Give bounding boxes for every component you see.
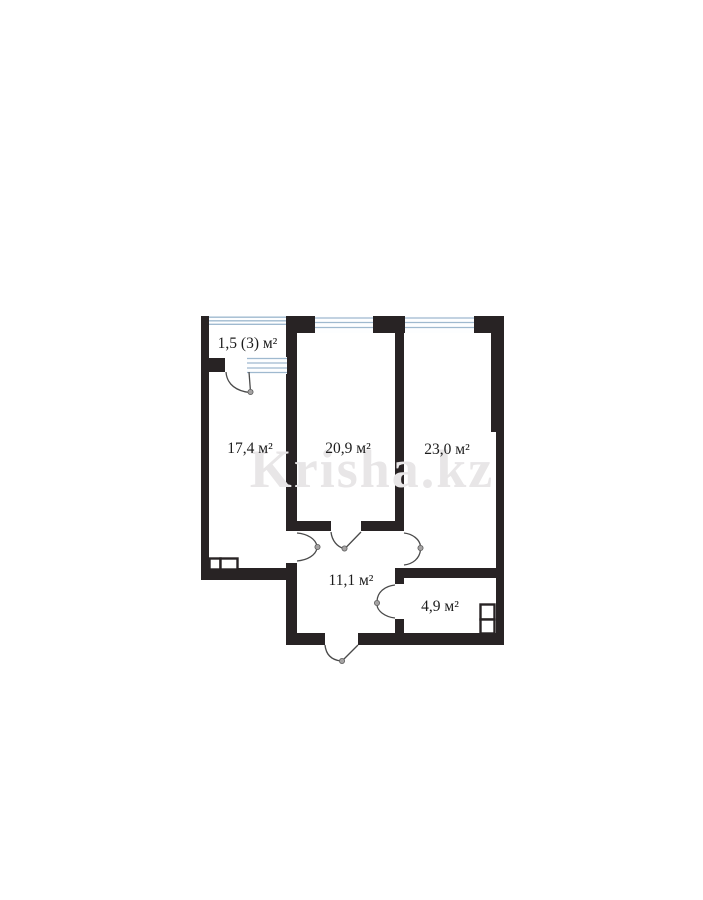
room-label-23: 23,0 м² [424,441,470,458]
window-room-23 [405,316,474,333]
room-label-balcony: 1,5 (3) м² [218,335,278,352]
fixture-room49-shaft [481,605,495,634]
wall-hallway-top-1 [286,521,331,531]
door-room-20 [331,532,361,551]
wall-right-outer-upper [491,316,504,432]
wall-hallway-49-upper [395,578,404,584]
wall-bottom-2 [358,633,504,645]
room-label-49: 4,9 м² [421,598,459,615]
room-label-17: 17,4 м² [227,440,273,457]
floor-plan-drawing: Krisha.kz [0,0,703,900]
room-label-hallway: 11,1 м² [329,572,374,589]
doors [226,372,423,664]
wall-left-outer [201,316,209,579]
room-label-20: 20,9 м² [325,440,371,457]
door-room-49 [374,585,395,618]
window-room-20 [315,316,373,333]
wall-divider-20-23 [395,333,404,531]
wall-balcony-bottom [201,358,225,372]
window-balcony-top [209,316,286,325]
wall-top-segment-2 [373,316,405,333]
fixture-room17-cabinet [210,559,238,570]
window-balcony-inner [247,357,287,374]
door-room-23 [404,533,423,565]
wall-bottom-1 [286,633,325,645]
door-balcony [226,372,253,395]
wall-top-segment-1 [286,316,315,333]
wall-right-outer-lower [496,432,504,645]
wall-hallway-top-2 [361,521,404,531]
wall-divider-23-49 [395,568,504,578]
floor-plan-page: Krisha.kz [0,0,703,900]
door-room-17 [297,533,320,561]
door-entrance [325,645,358,664]
